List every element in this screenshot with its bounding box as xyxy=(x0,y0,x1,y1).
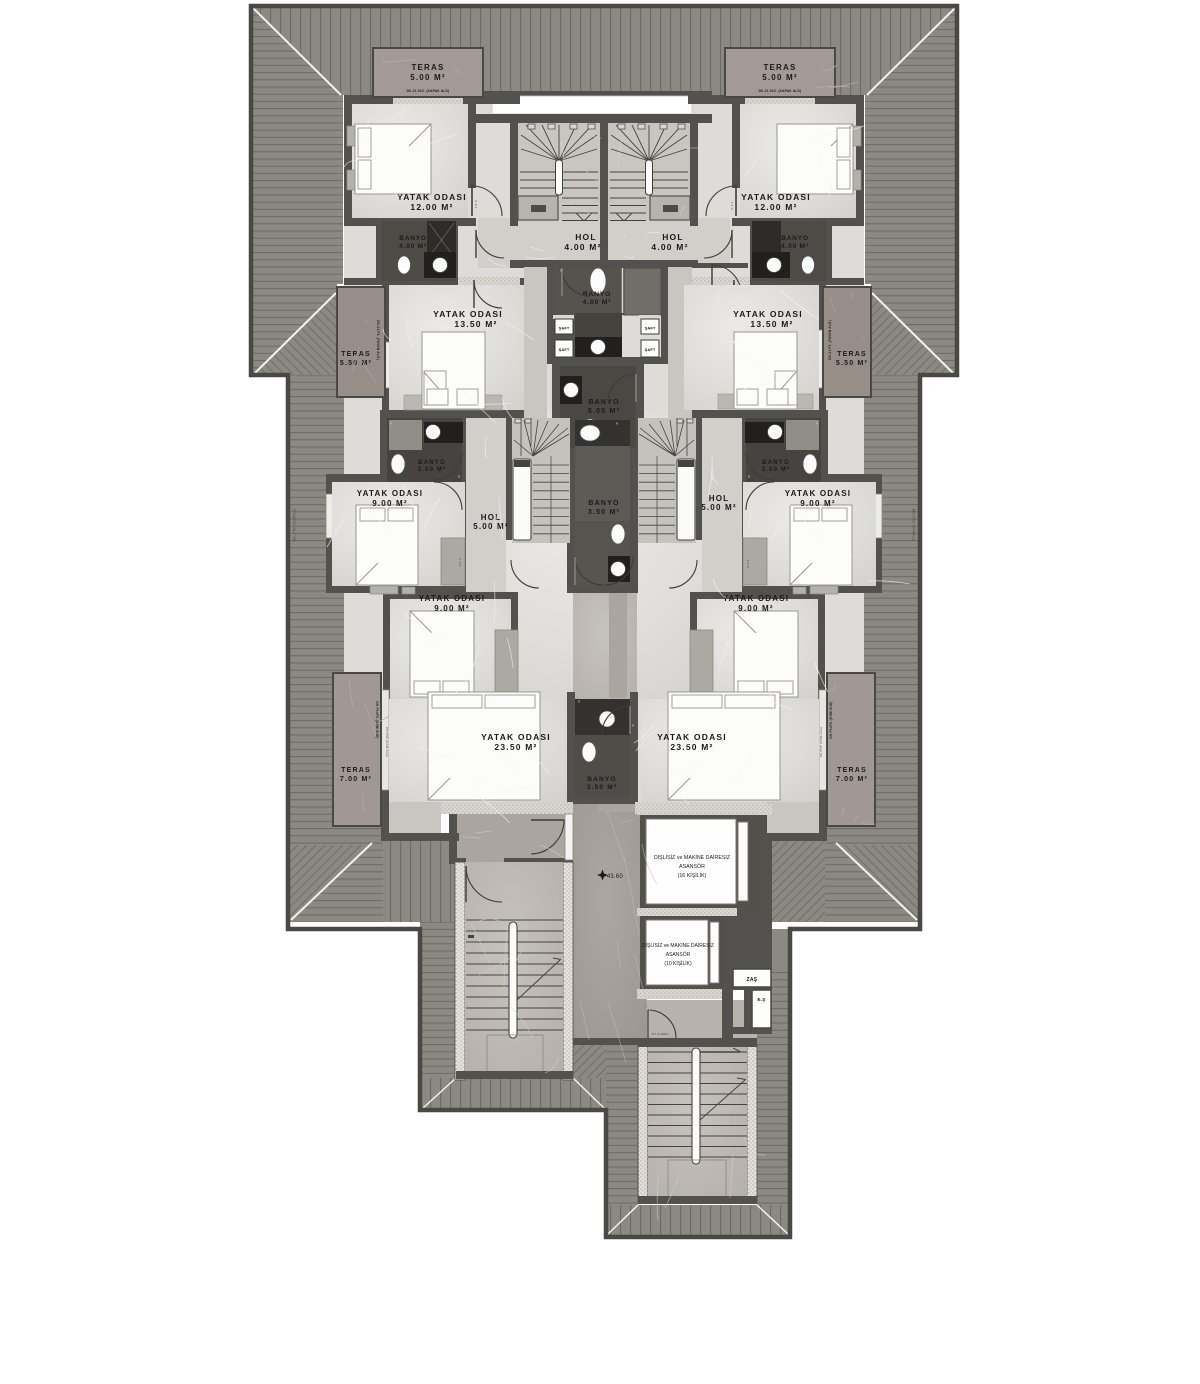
svg-text:DK.21.02C. (KAPAK ALG): DK.21.02C. (KAPAK ALG) xyxy=(759,89,802,93)
svg-text:DK.PNC (KSM ALG): DK.PNC (KSM ALG) xyxy=(385,727,389,758)
svg-text:TERAS: TERAS xyxy=(763,63,796,72)
svg-text:K90: K90 xyxy=(730,201,734,210)
svg-text:4.00 M²: 4.00 M² xyxy=(583,299,612,306)
svg-text:×: × xyxy=(748,474,751,479)
svg-text:ASANSÖR: ASANSÖR xyxy=(679,863,705,870)
svg-text:DİŞLİSİZ ve MAKİNE DAİRESİZ: DİŞLİSİZ ve MAKİNE DAİRESİZ xyxy=(654,854,731,861)
svg-text:+43.60: +43.60 xyxy=(603,874,623,880)
svg-text:TERAS: TERAS xyxy=(837,767,867,774)
svg-text:YATAK ODASI: YATAK ODASI xyxy=(433,309,503,319)
svg-text:13.50 M²: 13.50 M² xyxy=(750,319,793,329)
svg-text:12.00 M²: 12.00 M² xyxy=(410,202,453,212)
svg-text:TERAS: TERAS xyxy=(341,767,371,774)
svg-text:YATAK ODASI: YATAK ODASI xyxy=(397,192,467,202)
svg-text:ZAŞ: ZAŞ xyxy=(747,977,758,983)
svg-text:BANYO: BANYO xyxy=(587,776,616,783)
svg-text:YATAK ODASI: YATAK ODASI xyxy=(481,732,551,742)
svg-text:3.50 M²: 3.50 M² xyxy=(587,784,617,791)
svg-text:K80: K80 xyxy=(746,559,750,568)
svg-text:9.00 M²: 9.00 M² xyxy=(372,499,408,508)
svg-text:BKL.PNC SINIRKLG: BKL.PNC SINIRKLG xyxy=(912,509,916,542)
svg-text:×: × xyxy=(390,421,393,426)
svg-text:×: × xyxy=(632,723,635,728)
svg-text:K80: K80 xyxy=(458,559,462,568)
svg-text:DK.PNC (KSM ALG): DK.PNC (KSM ALG) xyxy=(819,727,823,758)
svg-text:DK.21.P2. (TAVAN ALG): DK.21.P2. (TAVAN ALG) xyxy=(376,320,380,360)
svg-text:5.00 M²: 5.00 M² xyxy=(762,73,798,82)
svg-text:RT KUBEN: RT KUBEN xyxy=(652,1032,669,1036)
svg-text:5.00 M²: 5.00 M² xyxy=(473,522,509,531)
svg-text:ŞAFT: ŞAFT xyxy=(559,326,570,331)
svg-text:ŞAFT: ŞAFT xyxy=(559,347,570,352)
svg-text:HOL: HOL xyxy=(662,232,684,242)
svg-text:DK.21.02C. (KAPAK ALG): DK.21.02C. (KAPAK ALG) xyxy=(407,89,450,93)
svg-text:4.00 M²: 4.00 M² xyxy=(564,242,601,252)
svg-text:7.00 M²: 7.00 M² xyxy=(836,776,868,783)
svg-text:DK.PenFC (GSM KUB): DK.PenFC (GSM KUB) xyxy=(829,701,833,738)
svg-text:5.50 M²: 5.50 M² xyxy=(340,360,372,367)
svg-text:ASANSÖR: ASANSÖR xyxy=(666,951,691,958)
svg-text:YATAK ODASI: YATAK ODASI xyxy=(733,309,803,319)
svg-text:BKL.PNC SINIRKLG: BKL.PNC SINIRKLG xyxy=(293,508,297,541)
svg-text:9.00 M²: 9.00 M² xyxy=(434,604,470,613)
svg-text:4.00 M²: 4.00 M² xyxy=(781,243,809,250)
svg-text:TERAS: TERAS xyxy=(837,351,867,358)
svg-text:5.00 M²: 5.00 M² xyxy=(410,73,446,82)
svg-text:ŞAFT: ŞAFT xyxy=(645,326,656,331)
svg-text:TERAS: TERAS xyxy=(411,63,444,72)
svg-text:YATAK ODASI: YATAK ODASI xyxy=(657,732,727,742)
svg-text:(16 KİŞİLİK): (16 KİŞİLİK) xyxy=(678,872,707,879)
svg-text:E.Ş: E.Ş xyxy=(757,997,765,1002)
svg-text:DK.PenFC (GSM KUB): DK.PenFC (GSM KUB) xyxy=(375,701,379,738)
svg-text:BANYO: BANYO xyxy=(781,235,808,242)
svg-text:BANYO: BANYO xyxy=(399,235,426,242)
svg-text:YATAK ODASI: YATAK ODASI xyxy=(785,489,851,498)
svg-text:3.50 M²: 3.50 M² xyxy=(418,466,447,473)
svg-text:YATAK ODASI: YATAK ODASI xyxy=(419,594,485,603)
svg-text:×: × xyxy=(616,421,619,426)
svg-text:HOL: HOL xyxy=(709,494,730,503)
svg-text:5.00 M²: 5.00 M² xyxy=(701,503,737,512)
svg-text:5.00 M²: 5.00 M² xyxy=(588,408,620,415)
svg-text:HOL: HOL xyxy=(575,232,597,242)
svg-text:4.00 M²: 4.00 M² xyxy=(651,242,688,252)
svg-text:×: × xyxy=(816,421,819,426)
svg-text:YATAK ODASI: YATAK ODASI xyxy=(723,594,789,603)
svg-text:DİŞLİSİZ ve MAKİNE DAİRESİZ: DİŞLİSİZ ve MAKİNE DAİRESİZ xyxy=(642,942,714,949)
svg-text:×: × xyxy=(458,474,461,479)
svg-text:(10 KİŞİLİK): (10 KİŞİLİK) xyxy=(664,960,692,967)
svg-text:BANYO: BANYO xyxy=(583,291,612,298)
svg-text:12.00 M²: 12.00 M² xyxy=(754,202,797,212)
svg-text:BANYO: BANYO xyxy=(418,460,446,466)
svg-text:HOL: HOL xyxy=(481,513,502,522)
svg-text:BANYO: BANYO xyxy=(762,460,790,466)
svg-text:4.00 M²: 4.00 M² xyxy=(399,243,427,250)
svg-text:K90: K90 xyxy=(474,201,478,210)
svg-text:9.00 M²: 9.00 M² xyxy=(738,604,774,613)
svg-text:7.00 M²: 7.00 M² xyxy=(340,776,372,783)
svg-text:×: × xyxy=(560,268,563,273)
svg-text:23.50 M²: 23.50 M² xyxy=(494,742,537,752)
svg-text:YATAK ODASI: YATAK ODASI xyxy=(357,489,423,498)
svg-text:×: × xyxy=(578,699,581,704)
svg-text:BANYO: BANYO xyxy=(588,399,619,406)
svg-text:3.50 M²: 3.50 M² xyxy=(762,466,791,473)
svg-text:YATAK ODASI: YATAK ODASI xyxy=(741,192,811,202)
svg-text:BANYO: BANYO xyxy=(588,500,619,507)
svg-text:13.50 M²: 13.50 M² xyxy=(454,319,497,329)
svg-text:DK.21.P2. (TAVAN ALG): DK.21.P2. (TAVAN ALG) xyxy=(828,320,832,360)
svg-text:ŞAFT: ŞAFT xyxy=(645,347,656,352)
svg-text:5.50 M²: 5.50 M² xyxy=(836,360,868,367)
svg-text:3.50 M²: 3.50 M² xyxy=(588,509,620,516)
svg-text:9.00 M²: 9.00 M² xyxy=(800,499,836,508)
